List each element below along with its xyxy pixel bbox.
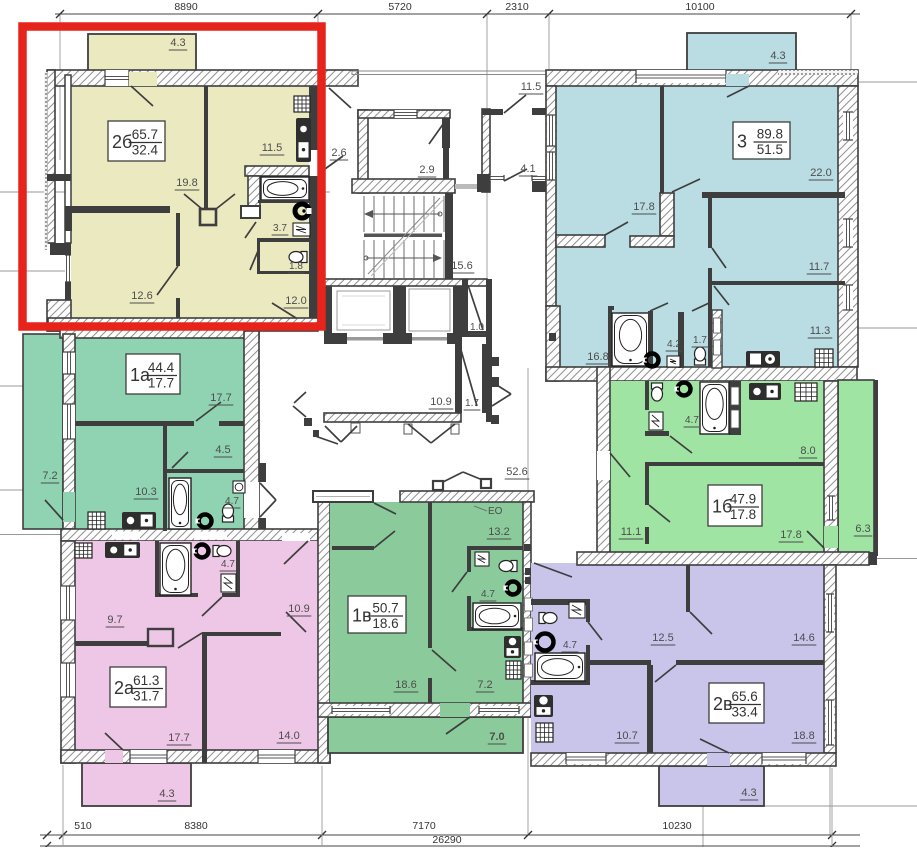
svg-text:89.8: 89.8 [757, 127, 783, 142]
svg-text:1.0: 1.0 [470, 322, 484, 333]
svg-text:50.7: 50.7 [372, 601, 398, 616]
svg-text:4.3: 4.3 [741, 787, 756, 799]
svg-text:10230: 10230 [662, 820, 691, 832]
svg-text:10.3: 10.3 [135, 486, 156, 498]
svg-text:4.7: 4.7 [685, 415, 699, 426]
svg-text:8890: 8890 [174, 1, 198, 13]
svg-text:4.2: 4.2 [667, 339, 681, 350]
svg-text:10.9: 10.9 [430, 396, 451, 408]
svg-text:6.3: 6.3 [855, 523, 870, 535]
svg-text:1.7: 1.7 [693, 335, 707, 346]
svg-text:12.0: 12.0 [285, 295, 306, 307]
svg-text:1.7: 1.7 [465, 398, 479, 409]
svg-text:11.7: 11.7 [809, 261, 830, 273]
svg-text:11.1: 11.1 [621, 526, 642, 538]
svg-text:8380: 8380 [184, 820, 208, 832]
svg-text:5720: 5720 [388, 1, 412, 13]
svg-text:14.0: 14.0 [278, 730, 299, 742]
svg-text:51.5: 51.5 [757, 142, 783, 157]
svg-text:14.6: 14.6 [793, 632, 814, 644]
svg-text:26290: 26290 [432, 834, 461, 846]
svg-text:44.4: 44.4 [148, 360, 175, 375]
svg-text:10.9: 10.9 [288, 603, 309, 615]
svg-text:2.6: 2.6 [331, 147, 346, 159]
svg-text:11.3: 11.3 [810, 325, 831, 337]
svg-text:7.0: 7.0 [489, 731, 504, 743]
svg-text:10100: 10100 [685, 1, 714, 13]
svg-text:7170: 7170 [412, 820, 436, 832]
svg-text:65.6: 65.6 [732, 689, 758, 704]
svg-text:7.2: 7.2 [42, 470, 57, 482]
svg-text:17.7: 17.7 [210, 392, 231, 404]
svg-text:65.7: 65.7 [132, 127, 158, 142]
svg-text:17.8: 17.8 [730, 507, 756, 522]
svg-text:47.9: 47.9 [730, 492, 756, 507]
svg-text:33.4: 33.4 [732, 705, 759, 720]
svg-text:510: 510 [74, 820, 92, 832]
svg-text:52.6: 52.6 [506, 466, 527, 478]
svg-text:18.8: 18.8 [793, 730, 814, 742]
svg-text:16.8: 16.8 [587, 351, 608, 363]
svg-text:4.7: 4.7 [481, 589, 495, 600]
svg-text:4.7: 4.7 [221, 559, 235, 570]
svg-text:7.2: 7.2 [477, 679, 492, 691]
svg-text:3.7: 3.7 [273, 223, 287, 234]
svg-text:4.7: 4.7 [563, 640, 577, 651]
svg-text:15.6: 15.6 [451, 260, 472, 272]
svg-text:13.2: 13.2 [488, 526, 509, 538]
svg-text:32.4: 32.4 [132, 143, 159, 158]
svg-text:4.3: 4.3 [159, 788, 174, 800]
svg-text:17.8: 17.8 [780, 529, 801, 541]
svg-text:17.7: 17.7 [148, 376, 174, 391]
svg-text:4.1: 4.1 [520, 163, 535, 175]
svg-text:12.5: 12.5 [652, 632, 673, 644]
svg-text:4.3: 4.3 [170, 37, 185, 49]
svg-text:2310: 2310 [505, 1, 529, 13]
svg-text:19.8: 19.8 [176, 177, 197, 189]
svg-text:10.7: 10.7 [616, 730, 637, 742]
svg-text:17.8: 17.8 [633, 201, 654, 213]
svg-text:17.7: 17.7 [168, 732, 189, 744]
svg-text:4.3: 4.3 [770, 50, 785, 62]
svg-text:4.7: 4.7 [225, 496, 239, 507]
svg-text:31.7: 31.7 [133, 689, 159, 704]
svg-text:22.0: 22.0 [810, 167, 831, 179]
svg-text:11.5: 11.5 [521, 81, 542, 93]
svg-text:1.8: 1.8 [289, 261, 303, 272]
svg-text:12.6: 12.6 [131, 290, 152, 302]
svg-text:61.3: 61.3 [133, 673, 159, 688]
svg-text:18.6: 18.6 [395, 679, 416, 691]
svg-text:ЕО: ЕО [488, 506, 503, 517]
svg-text:18.6: 18.6 [372, 616, 398, 631]
svg-text:2.9: 2.9 [419, 164, 434, 176]
svg-text:4.5: 4.5 [215, 444, 230, 456]
svg-text:3: 3 [737, 132, 747, 152]
svg-text:9.7: 9.7 [107, 614, 122, 626]
svg-text:8.0: 8.0 [800, 445, 815, 457]
svg-text:1в: 1в [352, 606, 372, 626]
svg-text:11.5: 11.5 [262, 142, 283, 154]
